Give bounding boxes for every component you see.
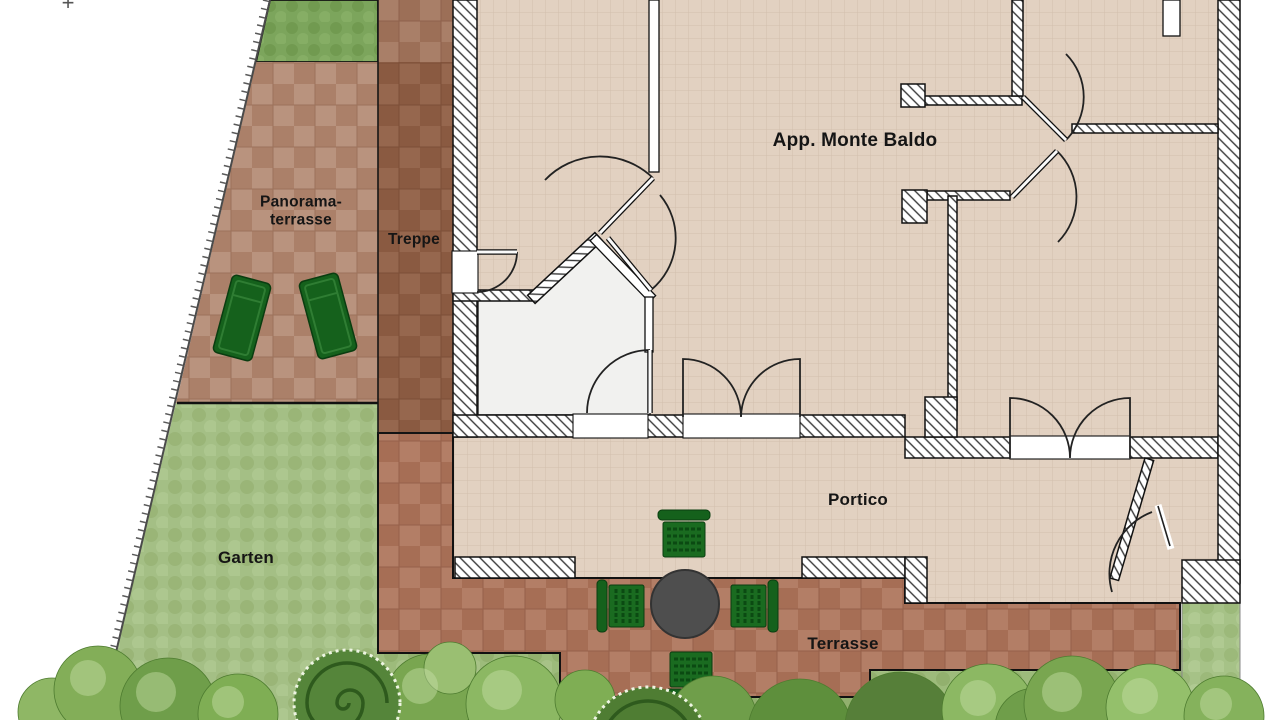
opening-portico-door-left bbox=[683, 414, 800, 438]
wall-right-exterior bbox=[1218, 0, 1240, 583]
round-table bbox=[651, 570, 719, 638]
label-panorama-line1: Panorama- bbox=[260, 194, 342, 212]
wall-room-v2 bbox=[948, 196, 957, 415]
stairs-area bbox=[378, 0, 456, 433]
label-apartment-name: App. Monte Baldo bbox=[773, 130, 938, 152]
label-terrace: Terrasse bbox=[807, 634, 878, 654]
wall-portico-top-left bbox=[453, 415, 905, 437]
wall-room-h2 bbox=[1072, 124, 1218, 133]
wall-portico-bottom-right bbox=[802, 557, 905, 578]
wall-left-exterior bbox=[453, 0, 477, 437]
opening-left-wall-door bbox=[452, 251, 478, 293]
wall-column-3 bbox=[925, 397, 957, 437]
floor-plan-canvas: App. Monte Baldo Portico Terrasse Garten… bbox=[0, 0, 1280, 720]
label-portico: Portico bbox=[828, 490, 888, 510]
wall-column-2 bbox=[902, 190, 927, 223]
label-panorama-terrace: Panorama- terrasse bbox=[260, 194, 342, 231]
label-panorama-line2: terrasse bbox=[260, 212, 342, 230]
plus-marker-icon: + bbox=[62, 0, 75, 16]
wall-portico-bottom-step bbox=[905, 557, 927, 603]
chair-left bbox=[597, 580, 644, 632]
grass-patch-top bbox=[256, 0, 378, 62]
chair-right bbox=[731, 580, 778, 632]
partition-center-vertical bbox=[649, 0, 659, 172]
stairs-area-upper bbox=[378, 0, 456, 62]
chair-top bbox=[658, 510, 710, 557]
floor-plan-drawing bbox=[0, 0, 1280, 720]
wall-room-v1 bbox=[1012, 0, 1023, 96]
wall-room-h1 bbox=[923, 96, 1022, 105]
wall-portico-bottom-left bbox=[455, 557, 575, 578]
label-stairs: Treppe bbox=[388, 231, 440, 249]
wall-column-1 bbox=[901, 84, 925, 107]
opening-window-hall bbox=[573, 414, 648, 438]
partition-hall-right-vertical bbox=[645, 297, 653, 352]
wall-corner-bottom-right bbox=[1182, 560, 1240, 603]
partition-top-right bbox=[1163, 0, 1180, 36]
label-garden: Garten bbox=[218, 548, 274, 568]
wall-room-h3 bbox=[927, 191, 1010, 200]
